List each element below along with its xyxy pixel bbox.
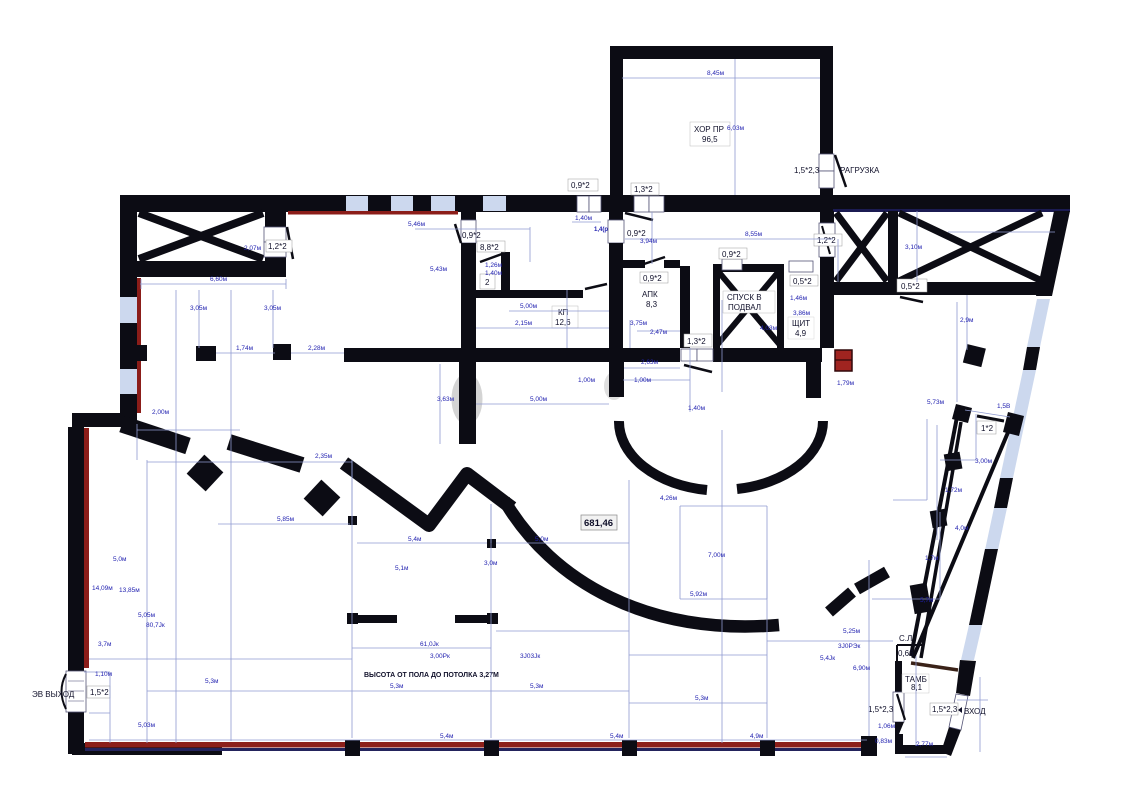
svg-text:0,9*2: 0,9*2 (627, 229, 646, 238)
svg-text:5,4м: 5,4м (440, 733, 454, 740)
svg-text:2,00м: 2,00м (152, 409, 170, 416)
svg-text:1*2: 1*2 (981, 424, 994, 433)
svg-text:РАГРУЗКА: РАГРУЗКА (840, 166, 880, 175)
svg-text:8,3: 8,3 (646, 300, 658, 309)
svg-text:5,3м: 5,3м (390, 683, 404, 690)
svg-text:96,5: 96,5 (702, 135, 718, 144)
svg-text:1,26м: 1,26м (485, 262, 503, 269)
svg-text:1,40м: 1,40м (688, 405, 706, 412)
svg-text:5,46м: 5,46м (408, 221, 426, 228)
svg-text:3,10м: 3,10м (905, 244, 923, 251)
svg-text:0,9*2: 0,9*2 (722, 250, 741, 259)
svg-text:5,43м: 5,43м (430, 266, 448, 273)
svg-text:АПК: АПК (642, 290, 658, 299)
svg-text:1,5В: 1,5В (997, 403, 1010, 410)
svg-text:1,06м: 1,06м (878, 723, 896, 730)
svg-text:1,2*2: 1,2*2 (268, 242, 287, 251)
svg-text:14,09м: 14,09м (92, 585, 113, 592)
svg-text:3,05м: 3,05м (190, 305, 208, 312)
svg-text:1,40м: 1,40м (575, 215, 593, 222)
svg-text:5,25м: 5,25м (843, 628, 861, 635)
svg-text:5,3м: 5,3м (205, 678, 219, 685)
svg-text:7,00м: 7,00м (708, 552, 726, 559)
svg-text:5,05м: 5,05м (138, 612, 156, 619)
svg-text:СПУСК В: СПУСК В (727, 293, 762, 302)
svg-text:1,3*2: 1,3*2 (634, 185, 653, 194)
svg-text:5,3м: 5,3м (695, 695, 709, 702)
svg-text:13,85м: 13,85м (119, 587, 140, 594)
svg-text:2,63м: 2,63м (641, 359, 659, 366)
svg-text:ЩИТ: ЩИТ (792, 319, 810, 328)
svg-text:2: 2 (485, 278, 490, 287)
svg-text:5,7м: 5,7м (920, 597, 934, 604)
svg-text:1,5*2,3: 1,5*2,3 (932, 705, 958, 714)
svg-text:3,86м: 3,86м (793, 310, 811, 317)
svg-text:8,1: 8,1 (911, 683, 923, 692)
svg-text:5,85м: 5,85м (277, 516, 295, 523)
svg-text:2,47м: 2,47м (650, 329, 668, 336)
svg-text:2,35м: 2,35м (315, 453, 333, 460)
svg-text:0,66: 0,66 (898, 649, 914, 658)
svg-text:0,83м: 0,83м (875, 738, 893, 745)
svg-text:3,63м: 3,63м (437, 396, 455, 403)
svg-text:4,9м: 4,9м (750, 733, 764, 740)
svg-text:5,4Jк: 5,4Jк (820, 655, 835, 662)
svg-text:1,5*2: 1,5*2 (90, 688, 109, 697)
svg-text:8,8*2: 8,8*2 (480, 243, 499, 252)
svg-text:3,05м: 3,05м (264, 305, 282, 312)
svg-text:5,4м: 5,4м (610, 733, 624, 740)
svg-text:12,6: 12,6 (555, 318, 571, 327)
svg-text:3J03Jк: 3J03Jк (520, 653, 540, 660)
svg-text:ПОДВАЛ: ПОДВАЛ (728, 303, 761, 312)
svg-text:4,9: 4,9 (795, 329, 807, 338)
svg-text:0,9*2: 0,9*2 (643, 274, 662, 283)
svg-text:6,90м: 6,90м (853, 665, 871, 672)
svg-text:61,0Jк: 61,0Jк (420, 641, 439, 648)
svg-text:5,0м: 5,0м (535, 536, 549, 543)
svg-text:1,2*2: 1,2*2 (817, 236, 836, 245)
svg-text:4,03м: 4,03м (760, 325, 778, 332)
svg-text:2,77м: 2,77м (916, 741, 934, 748)
svg-text:5,3м: 5,3м (530, 683, 544, 690)
svg-text:1,00м: 1,00м (634, 377, 652, 384)
svg-text:5,0м: 5,0м (113, 556, 127, 563)
svg-text:ХОР ПР: ХОР ПР (694, 125, 724, 134)
svg-text:4,0м: 4,0м (955, 525, 969, 532)
svg-text:3,0м: 3,0м (484, 560, 498, 567)
svg-text:1,7м: 1,7м (925, 555, 939, 562)
svg-text:681,46: 681,46 (584, 518, 613, 529)
svg-text:5,4м: 5,4м (408, 536, 422, 543)
svg-text:3J0PЭк: 3J0PЭк (838, 643, 860, 650)
svg-text:1,5*2,3: 1,5*2,3 (794, 166, 820, 175)
svg-text:ЭВ ВЫХОД: ЭВ ВЫХОД (32, 690, 75, 699)
svg-text:0,9*2: 0,9*2 (571, 181, 590, 190)
svg-text:8,45м: 8,45м (707, 70, 725, 77)
svg-text:3,7м: 3,7м (98, 641, 112, 648)
svg-text:2,28м: 2,28м (308, 345, 326, 352)
svg-text:0,5*2: 0,5*2 (901, 282, 920, 291)
svg-text:6,03м: 6,03м (727, 125, 745, 132)
svg-text:1,4(р: 1,4(р (594, 227, 608, 233)
svg-text:1,46м: 1,46м (790, 295, 808, 302)
svg-text:0,9*2: 0,9*2 (462, 231, 481, 240)
svg-text:1,74м: 1,74м (236, 345, 254, 352)
svg-text:1,3*2: 1,3*2 (687, 337, 706, 346)
svg-text:5,92м: 5,92м (690, 591, 708, 598)
svg-text:1,00м: 1,00м (578, 377, 596, 384)
svg-text:1,10м: 1,10м (95, 671, 113, 678)
svg-text:1,72м: 1,72м (945, 487, 963, 494)
svg-text:С.Л: С.Л (899, 634, 912, 643)
svg-text:2,15м: 2,15м (515, 320, 533, 327)
svg-text:5,00м: 5,00м (530, 396, 548, 403)
svg-text:6,60м: 6,60м (210, 276, 228, 283)
svg-text:5,1м: 5,1м (395, 565, 409, 572)
svg-text:3,75м: 3,75м (630, 320, 648, 327)
svg-text:0,5*2: 0,5*2 (793, 277, 812, 286)
svg-text:2,9м: 2,9м (960, 317, 974, 324)
svg-text:3,00м: 3,00м (975, 458, 993, 465)
svg-text:2,07м: 2,07м (244, 245, 262, 252)
svg-text:4,26м: 4,26м (660, 495, 678, 502)
svg-text:3,00Рк: 3,00Рк (430, 653, 450, 660)
svg-text:5,73м: 5,73м (927, 399, 945, 406)
svg-text:ВЫСОТА ОТ ПОЛА ДО ПОТОЛКА 3,27: ВЫСОТА ОТ ПОЛА ДО ПОТОЛКА 3,27М (364, 672, 499, 679)
svg-text:1,79м: 1,79м (837, 380, 855, 387)
svg-text:80,7Jк: 80,7Jк (146, 622, 165, 629)
svg-text:1,40м: 1,40м (485, 270, 503, 277)
svg-text:8,55м: 8,55м (745, 231, 763, 238)
svg-text:ВХОД: ВХОД (964, 707, 986, 716)
svg-text:3,94м: 3,94м (640, 238, 658, 245)
svg-text:5,03м: 5,03м (138, 722, 156, 729)
svg-text:5,00м: 5,00м (520, 303, 538, 310)
svg-text:1,5*2,3: 1,5*2,3 (868, 705, 894, 714)
